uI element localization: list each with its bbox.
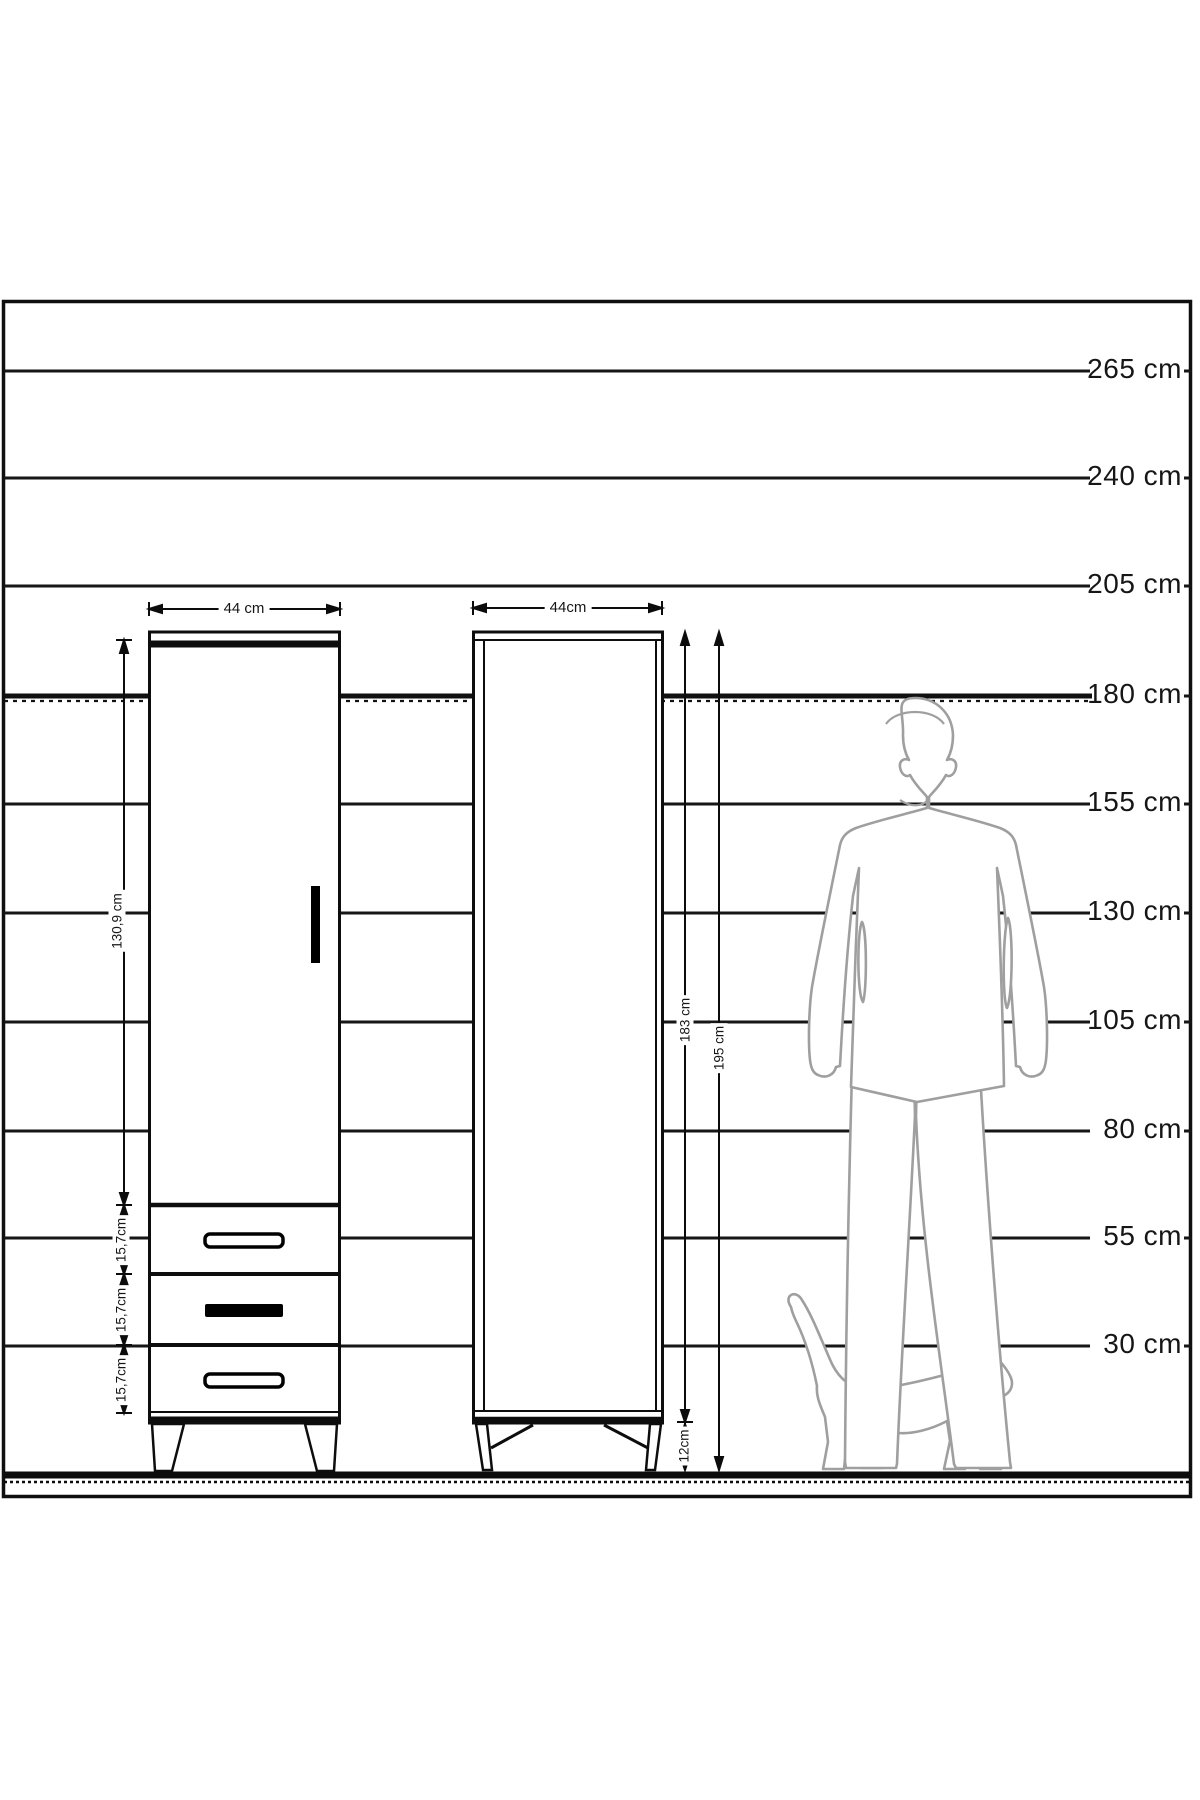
man-pocket-slit-left — [858, 922, 866, 1002]
ruler-label-205: 205 cm — [1022, 567, 1182, 601]
drawer-handle-3 — [205, 1374, 283, 1387]
drawer-height-label-1: 15,7cm — [113, 1215, 130, 1265]
ruler-label-130: 130 cm — [1022, 894, 1182, 928]
technical-diagram: 265 cm 240 cm 205 cm 180 cm 155 cm 130 c… — [0, 0, 1200, 1800]
left-cabinet-width-label: 44 cm — [219, 600, 270, 617]
wardrobe-side-view — [474, 632, 663, 1470]
man-pocket-slit-right — [1004, 918, 1012, 1008]
drawer-height-label-3: 15,7cm — [113, 1355, 130, 1405]
ruler-label-265: 265 cm — [1022, 352, 1182, 386]
ruler-label-240: 240 cm — [1022, 459, 1182, 493]
ruler-label-30: 30 cm — [1022, 1327, 1182, 1361]
right-cabinet-width-label: 44cm — [545, 599, 592, 616]
ruler-label-155: 155 cm — [1022, 785, 1182, 819]
leg-height-label: 12cm — [676, 1426, 693, 1465]
body-height-label: 183 cm — [677, 995, 694, 1045]
ruler-label-80: 80 cm — [1022, 1112, 1182, 1146]
ruler-label-105: 105 cm — [1022, 1003, 1182, 1037]
drawer-height-label-2: 15,7cm — [113, 1285, 130, 1335]
door-height-label: 130,9 cm — [109, 890, 126, 952]
door-handle — [311, 886, 320, 963]
drawer-handle-1 — [205, 1234, 283, 1247]
wardrobe-front-view — [150, 632, 340, 1471]
total-height-label: 195 cm — [711, 1023, 728, 1073]
drawer-handle-2 — [205, 1304, 283, 1317]
ruler-label-55: 55 cm — [1022, 1219, 1182, 1253]
diagram-drawing — [0, 0, 1200, 1800]
ruler-label-180: 180 cm — [1022, 677, 1182, 711]
